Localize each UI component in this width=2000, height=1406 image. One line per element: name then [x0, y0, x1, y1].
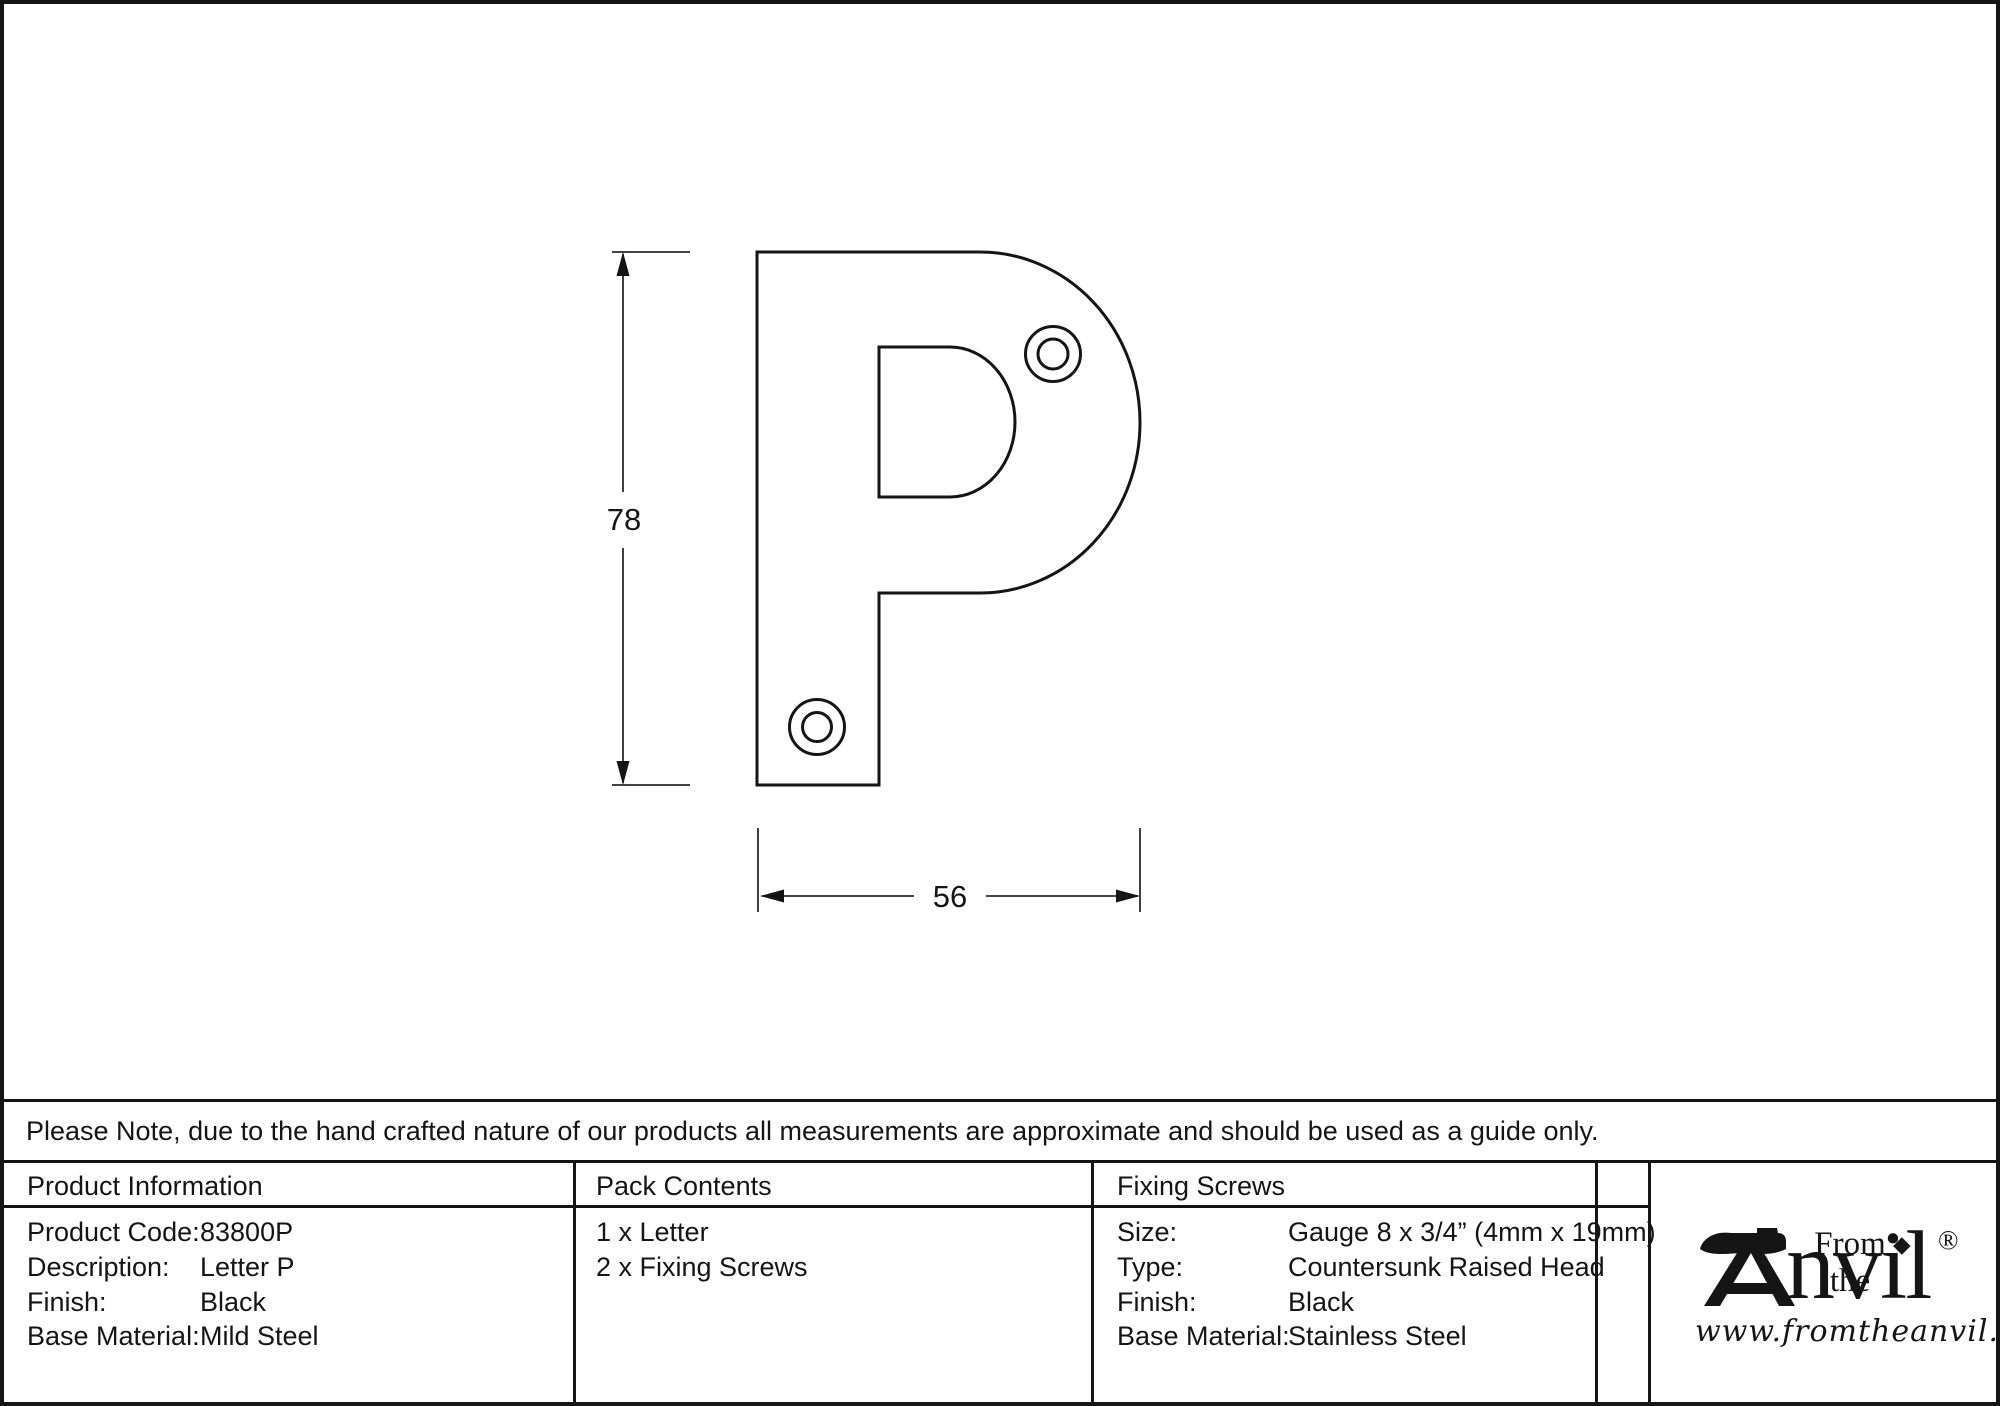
measurement-note-bar: Please Note, due to the hand crafted nat…: [0, 1099, 2000, 1163]
screw-hole-top-outer: [1026, 327, 1081, 382]
dimension-lines: [612, 252, 1140, 912]
screw-hole-top-inner: [1038, 339, 1068, 369]
logo-website-url: www.fromtheanvil.co.uk: [1695, 1314, 1961, 1349]
measurement-note-text: Please Note, due to the hand crafted nat…: [0, 1116, 1599, 1147]
pack-contents-header: Pack Contents: [596, 1171, 772, 1202]
product-information-column: Product Information Product Code: 83800P…: [0, 1163, 573, 1402]
fixing-screws-header: Fixing Screws: [1117, 1171, 1285, 1202]
width-dimension-label: 56: [933, 879, 967, 914]
anvil-icon: [1700, 1228, 1800, 1310]
registered-trademark-icon: ®: [1938, 1225, 1959, 1256]
product-spec-sheet: 78 56 Please Note, due to the hand craft…: [0, 0, 2000, 1406]
table-divider-4: [1648, 1163, 1651, 1402]
product-information-header: Product Information: [27, 1171, 263, 1202]
letter-p-outline: [757, 252, 1140, 785]
list-item: 1 x Letter: [596, 1217, 709, 1248]
screw-hole-bottom-outer: [790, 700, 845, 755]
letter-p-counter: [879, 347, 1015, 497]
height-dimension-label: 78: [607, 502, 641, 537]
logo-brand-text: nvil: [1786, 1224, 1930, 1308]
fixing-screws-column: Fixing Screws Size: Gauge 8 x 3/4” (4mm …: [1094, 1163, 1595, 1402]
screw-hole-bottom-inner: [803, 713, 832, 742]
list-item: 2 x Fixing Screws: [596, 1252, 808, 1283]
pack-contents-column: Pack Contents 1 x Letter 2 x Fixing Scre…: [576, 1163, 1091, 1402]
